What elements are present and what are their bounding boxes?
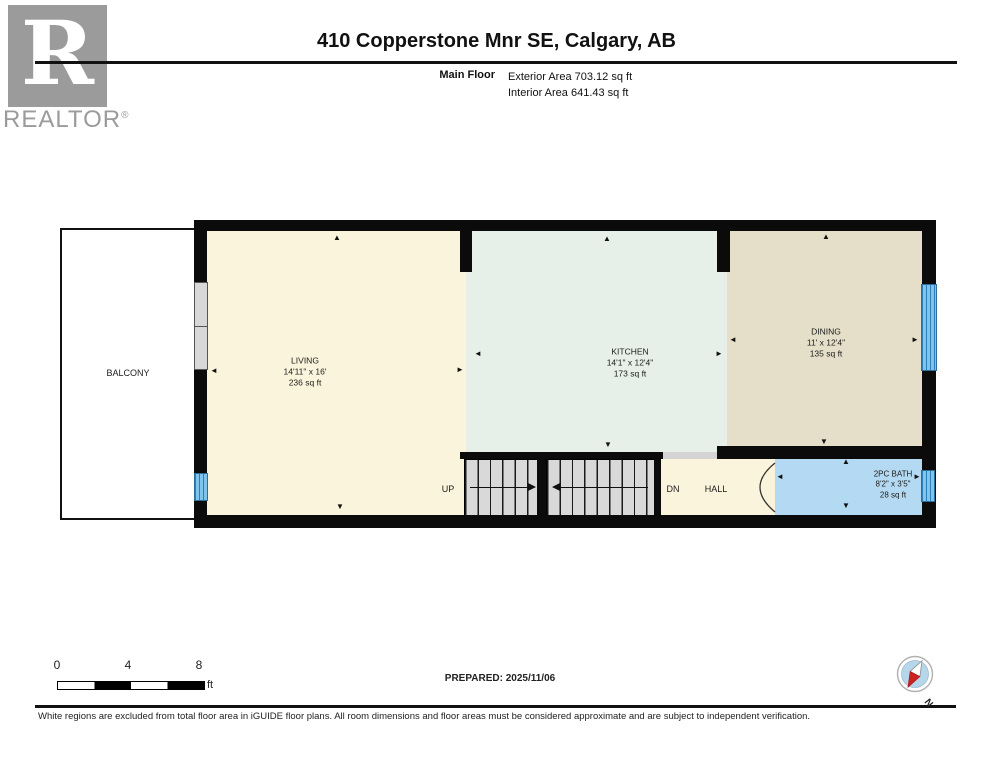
bath-dim-down-icon: ▼ (842, 502, 850, 510)
living-name: LIVING (284, 355, 327, 366)
wall-stub-living-kitchen (460, 231, 472, 272)
realtor-brand-text: REALTOR (3, 106, 121, 133)
bath-area: 28 sq ft (874, 490, 913, 500)
wall-top (194, 220, 936, 231)
page-title: 410 Copperstone Mnr SE, Calgary, AB (0, 30, 993, 53)
stairs-up-label: UP (442, 484, 455, 494)
scale-bar (57, 681, 205, 690)
kitchen-label: KITCHEN 14'1" x 12'4" 173 sq ft (607, 346, 654, 379)
exterior-area: Exterior Area 703.12 sq ft (508, 69, 632, 85)
stairs-down-arrow-icon (552, 483, 560, 491)
stairs-up-direction-line (470, 487, 528, 488)
living-window (194, 473, 208, 501)
bath-name: 2PC BATH (874, 469, 913, 479)
realtor-wordmark: REALTOR® (3, 106, 130, 134)
registered-mark: ® (121, 110, 129, 121)
realtor-r-icon: R (21, 9, 94, 97)
wall-stub-kitchen-dining (717, 231, 730, 272)
stairs-down-label: DN (667, 484, 680, 494)
dining-area: 135 sq ft (807, 349, 845, 360)
realtor-logo: R (8, 5, 107, 107)
footer-divider (35, 705, 956, 708)
scale-tick-8: 8 (196, 658, 203, 672)
bath-dim-up-icon: ▲ (842, 458, 850, 466)
dining-name: DINING (807, 326, 845, 337)
living-room-region (207, 231, 466, 515)
living-label: LIVING 14'11" x 16' 236 sq ft (284, 355, 327, 388)
kitchen-dim-right-icon: ► (715, 350, 723, 358)
balcony-label: BALCONY (106, 368, 149, 378)
living-area: 236 sq ft (284, 378, 327, 389)
bath-label: 2PC BATH 8'2" x 3'5" 28 sq ft (874, 469, 913, 500)
header-divider (35, 61, 957, 64)
kitchen-dim-up-icon: ▲ (603, 235, 611, 243)
living-dim-up-icon: ▲ (333, 234, 341, 242)
bath-door-swing-icon (746, 461, 778, 515)
bath-dim-left-icon: ◄ (776, 473, 784, 481)
kitchen-dim-down-icon: ▼ (604, 441, 612, 449)
dining-dims: 11' x 12'4" (807, 337, 845, 348)
dining-dim-left-icon: ◄ (729, 336, 737, 344)
disclaimer-text: White regions are excluded from total fl… (38, 711, 968, 722)
stairs-down-direction-line (560, 487, 648, 488)
floor-label: Main Floor (370, 69, 495, 81)
living-dims: 14'11" x 16' (284, 366, 327, 377)
hall-label: HALL (705, 484, 728, 494)
dining-dim-right-icon: ► (911, 336, 919, 344)
area-summary: Exterior Area 703.12 sq ft Interior Area… (508, 69, 632, 101)
bath-dim-right-icon: ► (913, 473, 921, 481)
compass-icon: N (893, 653, 939, 707)
dining-window (921, 284, 937, 371)
wall-stair-top (460, 452, 663, 459)
wall-bottom (194, 515, 936, 528)
kitchen-dims: 14'1" x 12'4" (607, 357, 654, 368)
dining-dim-down-icon: ▼ (820, 438, 828, 446)
prepared-date: PREPARED: 2025/11/06 (350, 673, 650, 684)
bath-dims: 8'2" x 3'5" (874, 480, 913, 490)
scale-tick-4: 4 (125, 658, 132, 672)
kitchen-dim-left-icon: ◄ (474, 350, 482, 358)
living-dim-down-icon: ▼ (336, 503, 344, 511)
scale-tick-0: 0 (54, 658, 61, 672)
hall-opening (663, 452, 720, 459)
stairs-up-arrow-icon (528, 483, 536, 491)
kitchen-area: 173 sq ft (607, 369, 654, 380)
kitchen-name: KITCHEN (607, 346, 654, 357)
living-dim-right-icon: ► (456, 366, 464, 374)
patio-door (194, 282, 208, 370)
scale-unit-label: ft (207, 679, 213, 691)
bath-window (921, 470, 935, 502)
wall-stair-divider (537, 459, 546, 515)
kitchen-region (466, 231, 727, 453)
living-dim-left-icon: ◄ (210, 367, 218, 375)
compass-north-label: N (922, 697, 935, 707)
dining-label: DINING 11' x 12'4" 135 sq ft (807, 326, 845, 359)
wall-dining-bottom (717, 446, 922, 459)
wall-stair-hall (654, 459, 661, 515)
floorplan-page: R REALTOR® 410 Copperstone Mnr SE, Calga… (0, 0, 993, 768)
dining-dim-up-icon: ▲ (822, 233, 830, 241)
interior-area: Interior Area 641.43 sq ft (508, 85, 632, 101)
